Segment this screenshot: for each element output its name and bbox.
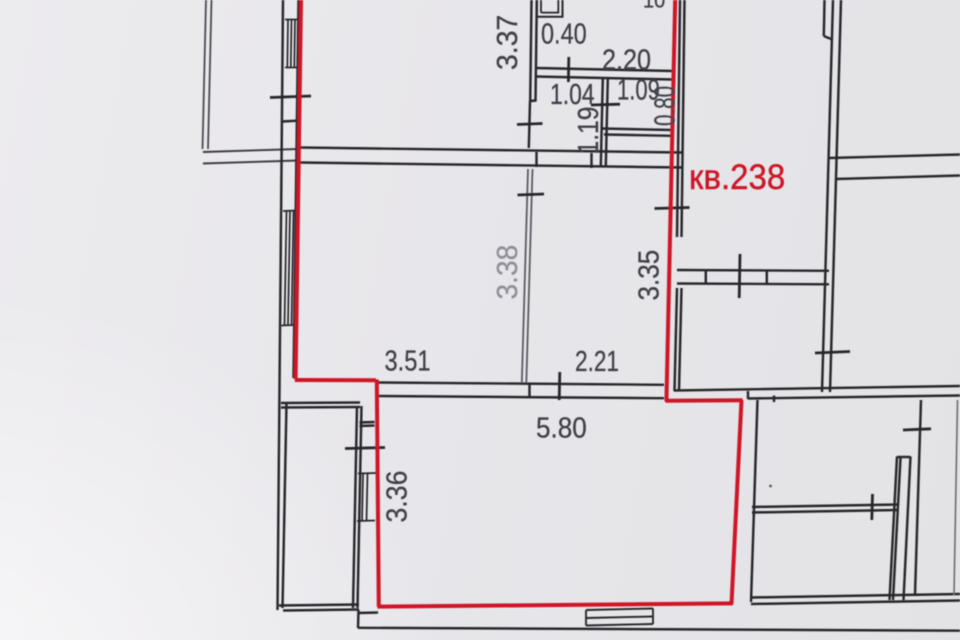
svg-text:0.40: 0.40 bbox=[541, 17, 587, 50]
svg-text:1.04: 1.04 bbox=[550, 77, 595, 110]
svg-text:1.19: 1.19 bbox=[572, 107, 604, 155]
svg-text:3.38: 3.38 bbox=[492, 245, 524, 300]
svg-text:2.21: 2.21 bbox=[575, 344, 619, 377]
svg-text:10: 10 bbox=[643, 0, 665, 13]
svg-text:3.35: 3.35 bbox=[632, 250, 665, 301]
svg-text:5.80: 5.80 bbox=[536, 411, 587, 444]
svg-text:3.51: 3.51 bbox=[385, 344, 431, 377]
svg-text:3.36: 3.36 bbox=[380, 471, 412, 523]
svg-text:0.80: 0.80 bbox=[649, 86, 681, 126]
svg-text:3.37: 3.37 bbox=[492, 15, 524, 70]
svg-text:кв.238: кв.238 bbox=[689, 158, 785, 197]
svg-text:2.20: 2.20 bbox=[602, 43, 651, 76]
